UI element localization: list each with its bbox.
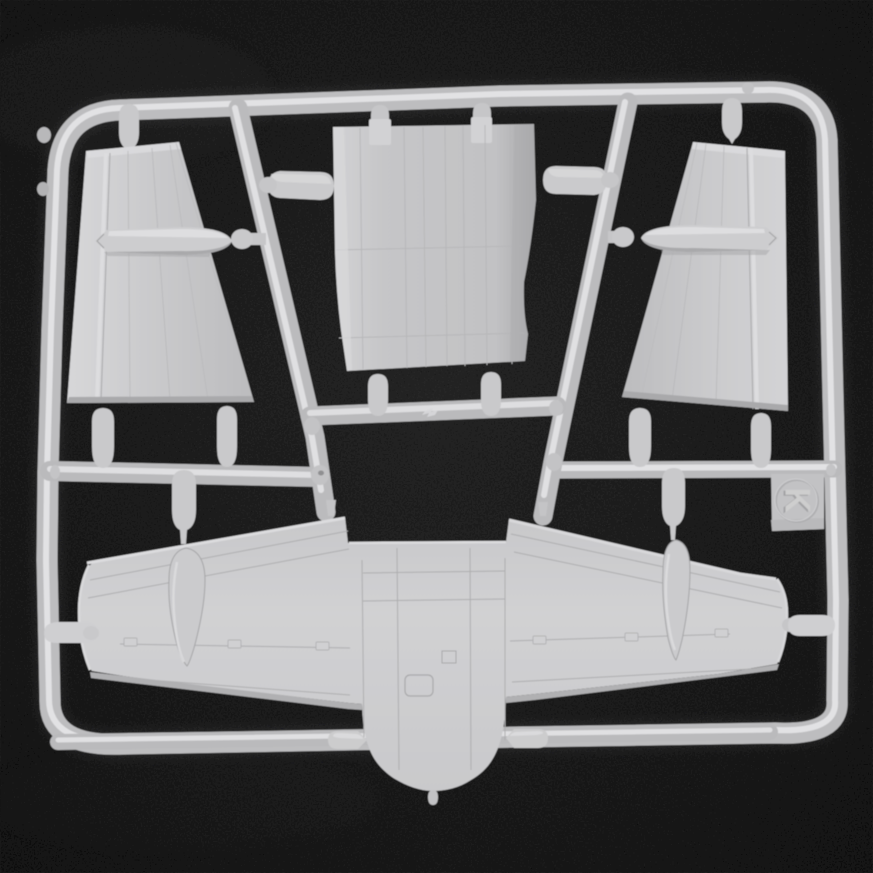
svg-text:K: K xyxy=(778,487,817,512)
